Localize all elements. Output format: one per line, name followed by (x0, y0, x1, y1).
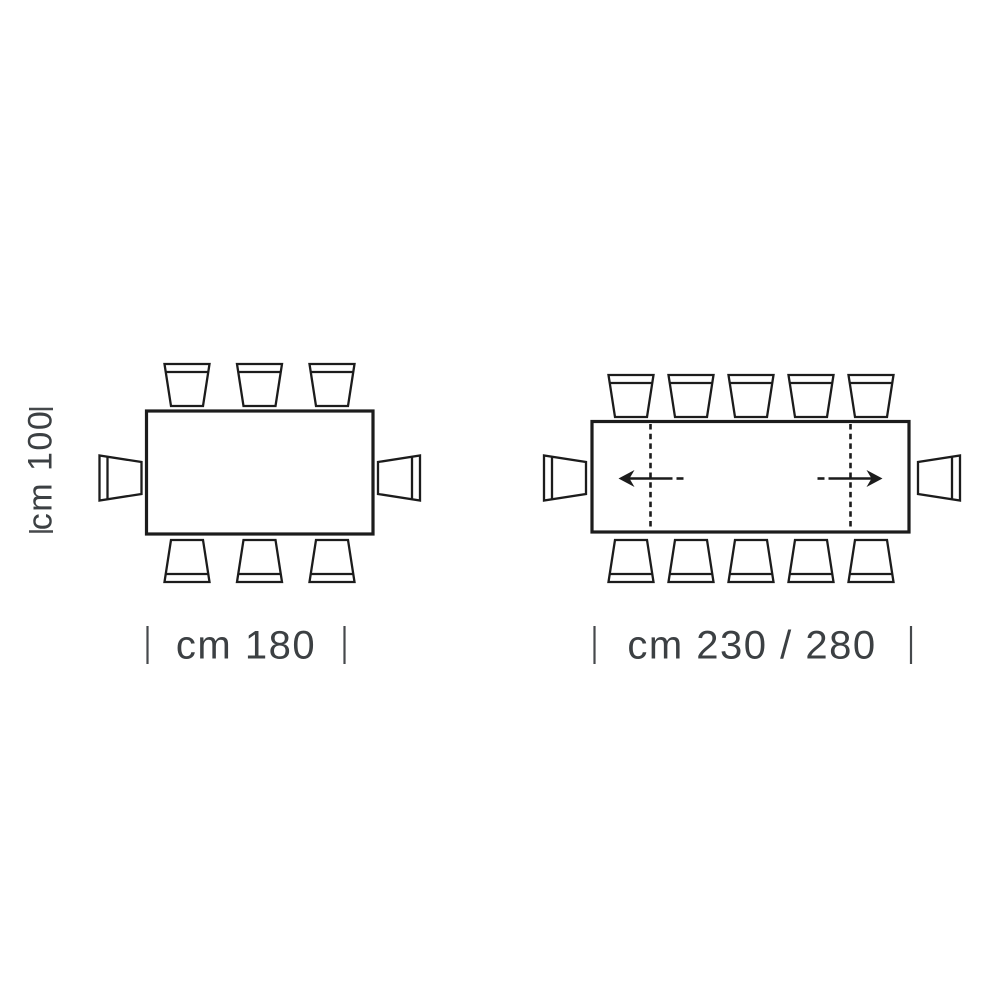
chair-icon (165, 540, 210, 582)
chair-icon (849, 375, 894, 417)
chair-icon (310, 364, 355, 406)
chair-icon (669, 375, 714, 417)
chair-icon (310, 540, 355, 582)
chair-icon (237, 540, 282, 582)
chair-icon (609, 540, 654, 582)
chair-icon (729, 540, 774, 582)
chair-icon (609, 375, 654, 417)
extendable-table-group (544, 375, 960, 582)
table-depth-label: cm 100 (22, 410, 61, 531)
fixed-table-surface (147, 411, 374, 534)
extendable-table-surface (592, 422, 909, 533)
chair-icon (378, 456, 420, 501)
extendable-table-length-label: cm 230 / 280 (627, 624, 876, 669)
furniture-dimension-diagram: cm 100 cm 180 cm 230 / 280 (0, 0, 1000, 1000)
fixed-table-length-label: cm 180 (176, 624, 316, 669)
chair-icon (544, 456, 586, 501)
chair-icon (918, 456, 960, 501)
chair-icon (729, 375, 774, 417)
chair-icon (849, 540, 894, 582)
chair-icon (789, 540, 834, 582)
chair-icon (165, 364, 210, 406)
chair-icon (789, 375, 834, 417)
fixed-table-group (100, 364, 421, 582)
chair-icon (669, 540, 714, 582)
chair-icon (100, 456, 142, 501)
chair-icon (237, 364, 282, 406)
tables-top-view-drawing (0, 0, 1000, 1000)
